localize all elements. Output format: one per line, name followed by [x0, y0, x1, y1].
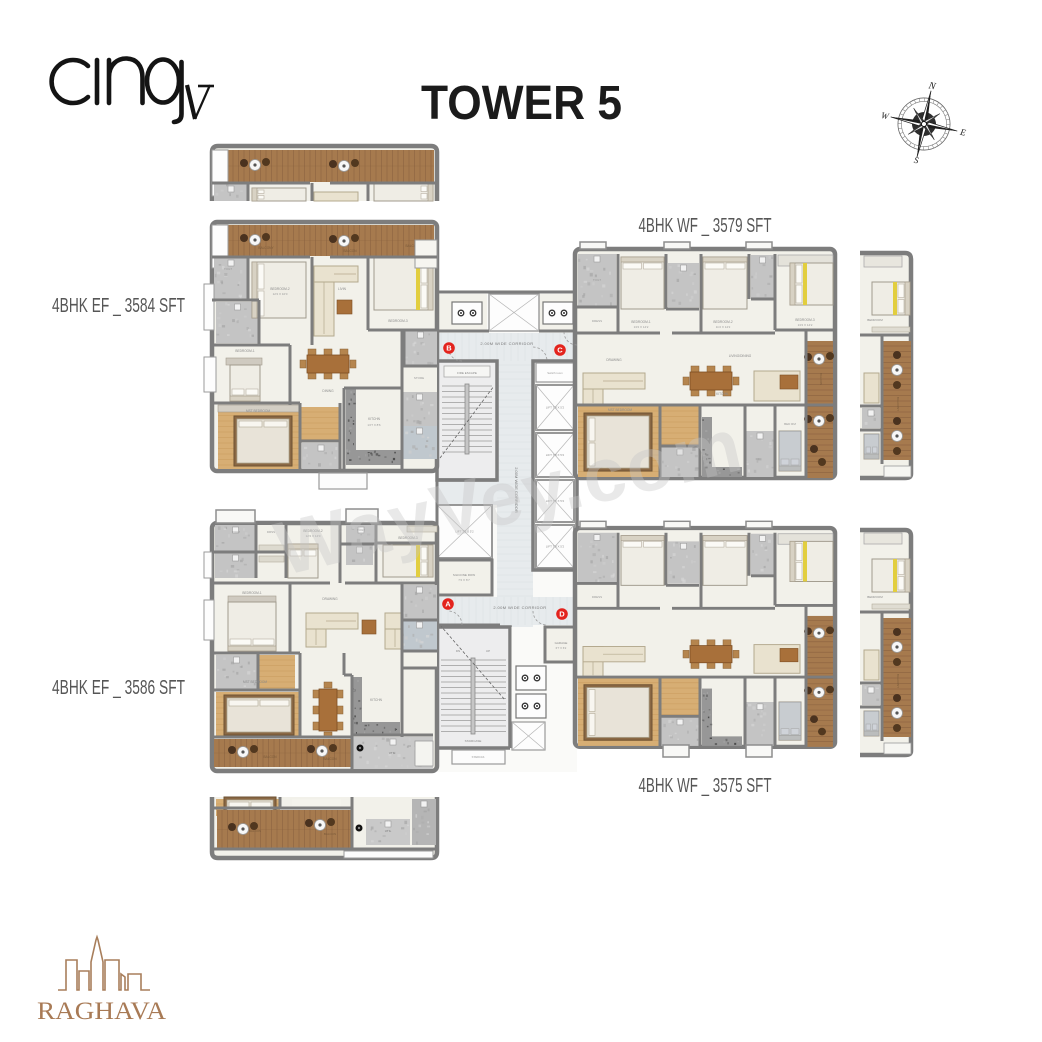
svg-text:BEDROOM: BEDROOM: [867, 595, 883, 599]
svg-text:LIFT 7'8 X 5'2: LIFT 7'8 X 5'2: [546, 406, 565, 410]
svg-text:BALCON: BALCON: [249, 829, 261, 833]
svg-text:BALCON: BALCON: [323, 757, 337, 761]
svg-text:TOILT: TOILT: [593, 278, 601, 282]
svg-text:DRAWING: DRAWING: [322, 597, 338, 601]
svg-text:MST BEDROOM: MST BEDROOM: [243, 680, 267, 684]
svg-text:MST BEDROOM: MST BEDROOM: [246, 409, 270, 413]
svg-text:DRESS: DRESS: [592, 595, 602, 599]
svg-text:RAGHAVA: RAGHAVA: [37, 998, 166, 1025]
svg-text:BALCON: BALCON: [819, 373, 823, 385]
svg-text:2.00M WIDE CORRIDOR: 2.00M WIDE CORRIDOR: [493, 605, 546, 610]
svg-text:UTIL: UTIL: [389, 751, 396, 755]
svg-text:DRESS: DRESS: [592, 319, 602, 323]
svg-text:11'2 X 14'2: 11'2 X 14'2: [716, 325, 731, 329]
svg-text:STAIRCAS: STAIRCAS: [472, 755, 485, 759]
svg-text:FIRE ESCAPE: FIRE ESCAPE: [457, 371, 477, 375]
svg-text:B: B: [446, 344, 452, 353]
svg-text:KITCHN: KITCHN: [368, 417, 381, 421]
svg-text:13'2 X 14'2: 13'2 X 14'2: [798, 323, 813, 327]
svg-text:BALCONY: BALCONY: [896, 397, 900, 411]
svg-text:BEDROOM-1: BEDROOM-1: [631, 320, 651, 324]
svg-text:BALCONY: BALCONY: [258, 246, 274, 250]
svg-text:KITCHN: KITCHN: [716, 392, 729, 396]
svg-text:2.00M WIDE CORRIDOR: 2.00M WIDE CORRIDOR: [480, 341, 533, 346]
svg-text:TOILT: TOILT: [224, 267, 232, 271]
svg-text:E: E: [958, 127, 967, 138]
svg-text:LIVIN: LIVIN: [338, 287, 347, 291]
svg-text:4BHK EF _ 3584 SFT: 4BHK EF _ 3584 SFT: [52, 295, 185, 317]
svg-text:BEDROOM-1: BEDROOM-1: [242, 591, 262, 595]
svg-text:BEDROOM-2: BEDROOM-2: [713, 320, 733, 324]
svg-text:UTIL: UTIL: [385, 829, 392, 833]
svg-text:7'2 X 6'7: 7'2 X 6'7: [458, 578, 470, 582]
svg-text:BEDROOM-2: BEDROOM-2: [270, 287, 290, 291]
svg-text:A: A: [445, 600, 451, 609]
svg-text:BALCONY: BALCONY: [896, 674, 900, 688]
svg-text:DRAWING: DRAWING: [606, 358, 622, 362]
svg-text:TOWER 5: TOWER 5: [421, 77, 622, 130]
svg-text:12'2 X 10'0: 12'2 X 10'0: [273, 292, 288, 296]
svg-text:SILICONE ROW: SILICONE ROW: [453, 573, 475, 577]
svg-text:UP: UP: [486, 649, 490, 653]
svg-text:BEDROOM-3: BEDROOM-3: [388, 319, 408, 323]
svg-text:TOILT: TOILT: [232, 530, 240, 534]
svg-text:KITCHN: KITCHN: [370, 698, 383, 702]
svg-text:BEDROOM-3: BEDROOM-3: [795, 318, 815, 322]
svg-text:DN: DN: [456, 649, 460, 653]
svg-text:LIFT 7'8 X 5'2: LIFT 7'8 X 5'2: [546, 545, 565, 549]
svg-text:BALCON: BALCON: [343, 249, 357, 253]
svg-text:BALCON: BALCON: [263, 755, 277, 759]
svg-text:BALCON: BALCON: [324, 832, 336, 836]
svg-text:W: W: [880, 110, 891, 122]
svg-text:4BHK WF _ 3579 SFT: 4BHK WF _ 3579 SFT: [639, 215, 772, 237]
svg-text:D: D: [559, 610, 565, 619]
svg-text:6'7 X 6'2: 6'7 X 6'2: [556, 646, 567, 650]
svg-text:C: C: [557, 346, 563, 355]
svg-text:4BHK EF _ 3586 SFT: 4BHK EF _ 3586 SFT: [52, 677, 185, 699]
svg-text:LIVING/DINING: LIVING/DINING: [729, 354, 752, 358]
svg-text:N: N: [927, 80, 938, 93]
svg-text:MST BEDROOM: MST BEDROOM: [608, 408, 632, 412]
svg-text:4BHK WF _ 3575 SFT: 4BHK WF _ 3575 SFT: [639, 775, 772, 797]
svg-text:DINING: DINING: [322, 389, 334, 393]
svg-text:STAIRCASE: STAIRCASE: [465, 739, 482, 743]
svg-text:BEDROOM: BEDROOM: [867, 318, 883, 322]
svg-text:BED RM: BED RM: [784, 422, 796, 426]
svg-text:S: S: [913, 155, 920, 166]
svg-text:Switch room: Switch room: [547, 371, 563, 375]
svg-text:13'2 X 14'2: 13'2 X 14'2: [634, 325, 649, 329]
svg-text:13'7 X 8'6: 13'7 X 8'6: [367, 423, 380, 427]
svg-text:BEDROOM-1: BEDROOM-1: [235, 349, 255, 353]
svg-text:STORE: STORE: [414, 376, 424, 380]
svg-text:GARAGE: GARAGE: [555, 641, 568, 645]
